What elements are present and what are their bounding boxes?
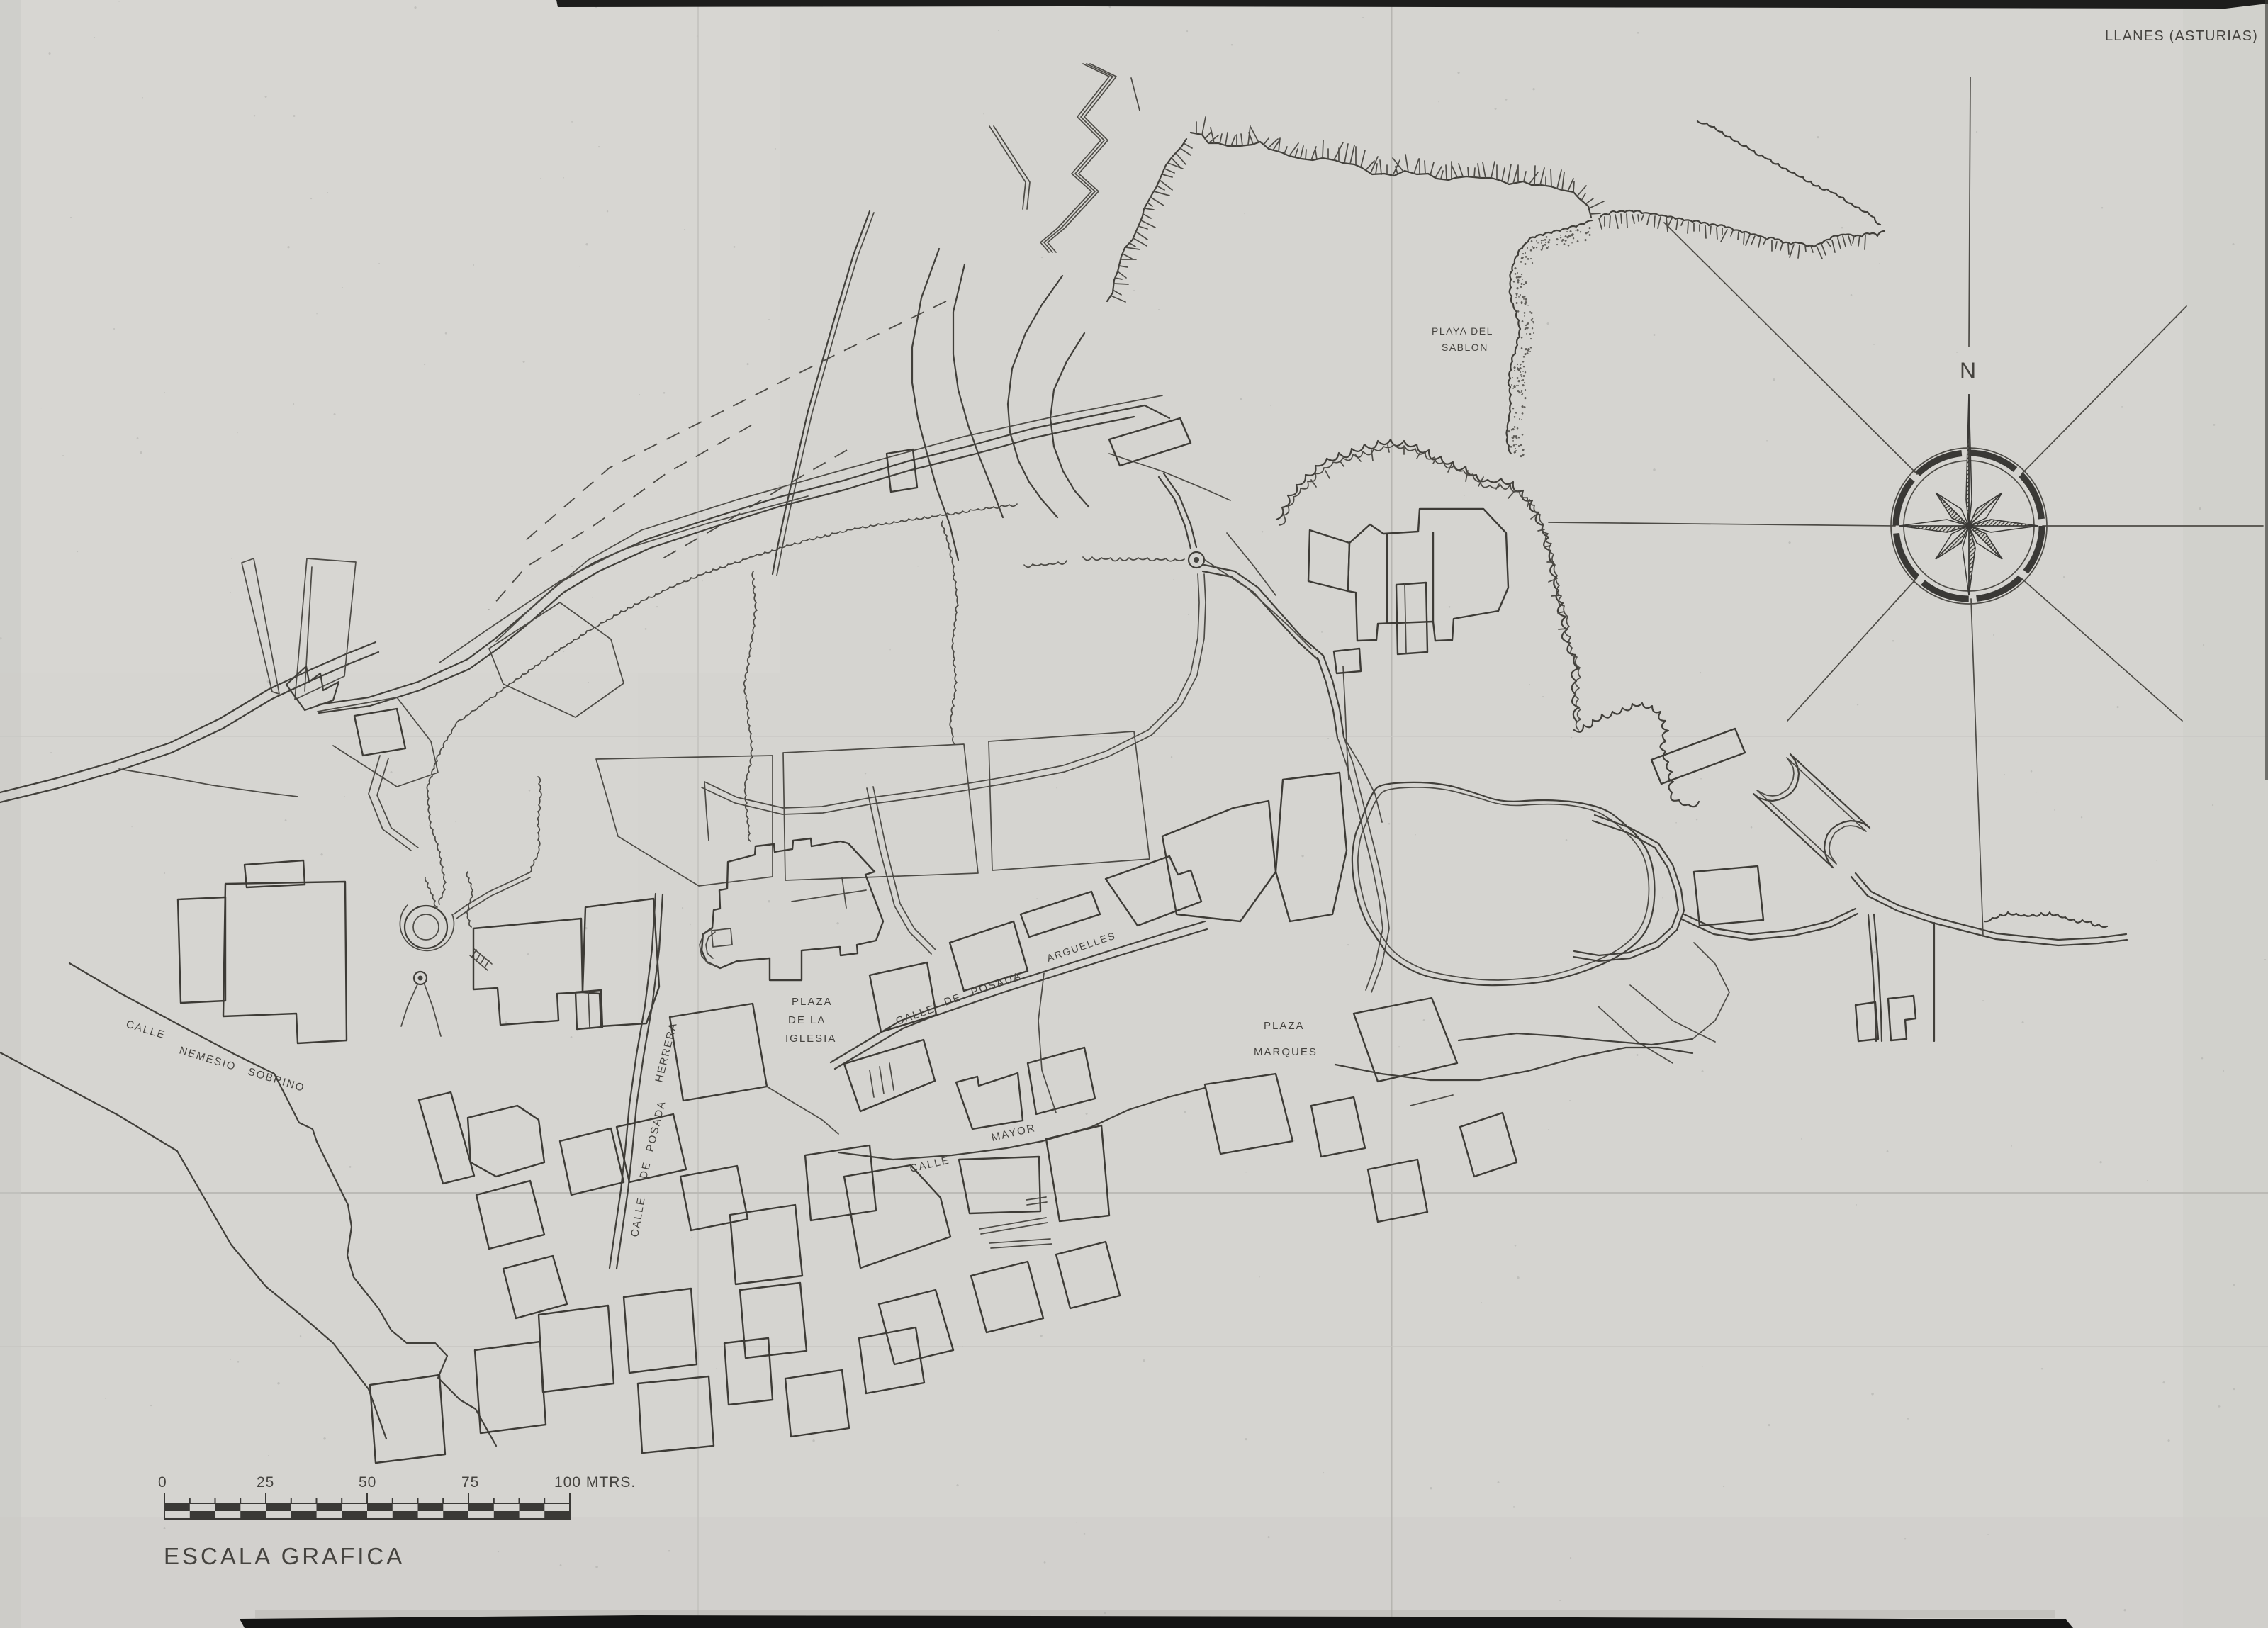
svg-text:PLAYA DEL: PLAYA DEL [1432, 325, 1493, 337]
svg-text:75: 75 [461, 1474, 479, 1491]
svg-text:25: 25 [257, 1474, 274, 1491]
svg-text:100 MTRS.: 100 MTRS. [554, 1474, 636, 1491]
svg-text:MARQUES: MARQUES [1254, 1046, 1318, 1058]
svg-text:LLANES (ASTURIAS): LLANES (ASTURIAS) [2105, 28, 2258, 44]
svg-text:0: 0 [158, 1474, 167, 1491]
svg-text:SABLON: SABLON [1442, 342, 1488, 353]
svg-text:PLAZA: PLAZA [792, 996, 833, 1008]
svg-text:ESCALA GRAFICA: ESCALA GRAFICA [164, 1543, 405, 1569]
svg-text:IGLESIA: IGLESIA [785, 1033, 836, 1045]
svg-text:PLAZA: PLAZA [1264, 1020, 1305, 1032]
svg-text:N: N [1960, 358, 1976, 383]
svg-text:DE LA: DE LA [788, 1014, 826, 1026]
svg-text:50: 50 [359, 1474, 376, 1491]
